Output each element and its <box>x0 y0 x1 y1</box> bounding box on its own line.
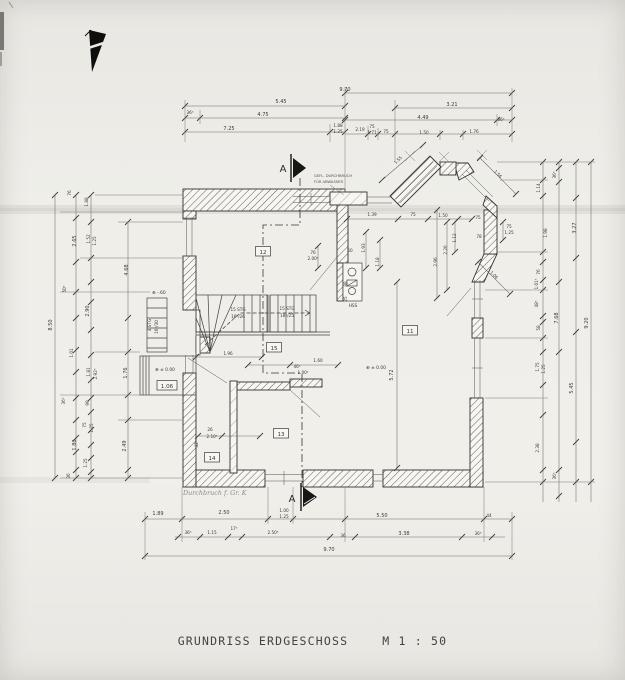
dim-bottom: 1.25 <box>279 514 289 519</box>
dim-left: 1.88 <box>84 197 89 207</box>
dim-top: 1.88 <box>333 123 343 128</box>
dim-right: 7.68 <box>554 312 560 323</box>
title-scale: M 1 : 50 <box>382 634 447 648</box>
dim-plan: 1.12 <box>452 233 457 243</box>
dim-bottom: 1.00 <box>279 508 289 513</box>
scanned-floorplan-page: 9.705.453.2136⁵4.754.4936⁵7.251.881.252.… <box>0 0 625 680</box>
wall-bay-cant-upper-start <box>454 163 474 180</box>
handwritten-note: Durchbruch f. Gr. K <box>182 489 248 497</box>
dim-top: 3.21 <box>446 102 457 108</box>
floorplan-drawing: 9.705.453.2136⁵4.754.4936⁵7.251.881.252.… <box>0 0 625 680</box>
dim-plan: 88 <box>343 281 348 287</box>
dim-bottom: 2.50⁵ <box>267 530 278 535</box>
dim-left: 1.81 <box>86 367 91 377</box>
dim-plan: 75 <box>506 224 512 229</box>
chimney-label: HSS <box>349 303 358 308</box>
dim-left: 1.25 <box>89 423 94 433</box>
stair-label: 18⁵/25 <box>280 313 294 318</box>
title-text: GRUNDRISS ERDGESCHOSS <box>178 634 349 648</box>
dim-plan: 42⁵ <box>194 440 199 447</box>
dim-right: 76 <box>536 269 541 275</box>
dim-right: 36⁵ <box>552 472 557 479</box>
section-triangle-top <box>293 158 306 178</box>
dim-top: 9.70 <box>339 87 350 93</box>
dim-right: 1.14 <box>536 183 541 193</box>
dim-plan: 1.56 <box>493 169 503 179</box>
cross-marks <box>405 150 487 162</box>
section-marker-a-top: A <box>280 164 287 175</box>
dim-top: 75 <box>383 129 389 134</box>
dim-left: 99 <box>85 400 90 406</box>
wall-room13-top <box>237 382 290 390</box>
dim-left: 2.49 <box>122 440 128 451</box>
dim-plan: 1.93 <box>361 243 366 253</box>
dim-right: 1.25 <box>541 364 546 374</box>
dim-plan: 50 <box>347 248 353 253</box>
dim-bottom: 44 <box>486 513 492 518</box>
dim-tick <box>379 177 385 183</box>
dim-left: 2.90 <box>85 305 91 316</box>
dim-left: 1.80 <box>72 439 78 450</box>
dim-bottom: 36⁵ <box>474 531 481 536</box>
dim-left: 8.50 <box>48 319 54 330</box>
dim-top: 2.19 <box>355 127 365 132</box>
dim-right: 5.45 <box>569 382 575 393</box>
dim-plan: 26 <box>207 427 213 432</box>
dim-top: 1.50 <box>419 130 429 135</box>
dim-left: 76 <box>67 190 72 196</box>
dim-right: 1.75 <box>535 362 540 372</box>
section-marker-a-bottom: A <box>289 494 296 505</box>
dim-top: 1.71 <box>367 130 377 135</box>
dim-bottom: 5.50 <box>376 513 387 519</box>
dim-plan: 2.10⁵ <box>206 434 217 439</box>
wall-left-lower <box>183 373 196 487</box>
exterior-stair-label: 16⁵/30 <box>154 320 159 334</box>
dim-bottom: 9.70 <box>323 547 334 553</box>
dim-left: 2.65 <box>72 235 78 246</box>
dim-plan: 1.96 <box>223 351 233 356</box>
dim-top: 7.25 <box>223 126 234 132</box>
wall-bottom <box>383 470 483 487</box>
dim-plan: 1.39 <box>367 212 377 217</box>
dimension-lines <box>52 88 595 560</box>
dim-plan: 2.26 <box>443 245 448 255</box>
dim-bottom: 36 <box>340 533 346 538</box>
dim-plan: 1.60 <box>313 358 323 363</box>
stair-label: 18⁵/26 <box>231 314 245 319</box>
duct-note-line2: FÜR ABWASSER <box>314 179 343 184</box>
wall-bottom <box>303 470 373 487</box>
dim-bottom: 36⁵ <box>184 530 191 535</box>
stair-label: 15 STG <box>279 306 294 311</box>
stair-label: 15 STG <box>230 307 245 312</box>
wall-room13-top <box>290 379 322 387</box>
dim-left: 50⁵ <box>62 285 67 292</box>
wall-left <box>183 256 196 310</box>
room-number-15: 15 <box>270 346 278 352</box>
dim-plan: 1.50 <box>438 213 448 218</box>
dim-plan: 2.96 <box>433 257 438 267</box>
dim-right: 48⁵ <box>534 300 539 307</box>
dim-bottom: 2.50 <box>218 510 229 516</box>
dim-right: 3.27 <box>572 222 578 233</box>
dim-top: 1.25 <box>333 129 343 134</box>
level-marker: ⊕ ± 0.00 <box>366 365 386 371</box>
dim-plan: 46⁵ <box>293 364 300 369</box>
dim-right: 58 <box>536 325 541 331</box>
dim-left: 75 <box>82 422 87 428</box>
dim-right: 36⁵ <box>552 171 557 178</box>
dim-top: 5.45 <box>275 99 286 105</box>
level-marker: ⊕ -.60 <box>152 290 166 296</box>
room-number-11: 11 <box>406 329 414 335</box>
wall-right-pier <box>472 318 483 338</box>
dim-left: 1.25 <box>83 458 88 468</box>
dim-left: 2.92⁵ <box>93 368 98 379</box>
duct-lintel <box>330 192 367 205</box>
north-arrow-icon <box>85 30 107 72</box>
dim-bottom: 1.15 <box>207 530 217 535</box>
dim-plan: 76 <box>310 250 316 255</box>
dim-plan: 25 <box>343 296 348 302</box>
dim-left: 1.52 <box>86 234 91 244</box>
dim-plan: 1.25 <box>504 230 514 235</box>
wall-top <box>183 189 345 211</box>
room-number-13: 13 <box>277 432 285 438</box>
room-number-14: 14 <box>208 456 216 462</box>
corner-mark <box>9 2 13 8</box>
dim-top: 4.75 <box>257 112 268 118</box>
dim-right: 1.98 <box>543 228 548 238</box>
dim-right: 1.01⁵ <box>534 278 539 289</box>
dim-plan: 1.18 <box>375 257 380 267</box>
stair-outer-wall <box>196 310 200 355</box>
dim-top: 36⁵ <box>186 110 193 115</box>
dim-left: 4.68 <box>124 264 130 275</box>
dim-plan: 78 <box>476 234 482 239</box>
room-number-1.06: 1.06 <box>161 384 174 390</box>
dim-plan: 75 <box>410 212 416 217</box>
exterior-stair-label: 4 STG <box>147 319 152 331</box>
dim-right: 2.38 <box>535 443 540 453</box>
dim-tick <box>420 142 426 148</box>
edge-smudge <box>0 12 4 50</box>
edge-smudge <box>0 52 2 66</box>
dim-right: 9.20 <box>584 317 590 328</box>
dim-plan: 1.06 <box>489 270 499 280</box>
wall-interior-light <box>230 381 237 473</box>
dim-top: 36⁵ <box>497 117 504 122</box>
dim-left: 1.01 <box>69 348 74 358</box>
dim-plan: 5.72 <box>389 369 395 380</box>
wall-interior-vertical <box>337 200 348 263</box>
dim-left: 1.76 <box>123 367 129 378</box>
dim-top: 75 <box>369 124 375 129</box>
dim-bottom: 3.38 <box>398 531 409 537</box>
drawing-title: GRUNDRISS ERDGESCHOSSM 1 : 50 <box>0 634 625 648</box>
dim-bottom: 1.89 <box>152 511 163 517</box>
wall-top-right-block <box>440 162 456 175</box>
room-number-12: 12 <box>259 250 266 256</box>
wall-bay-cant-lower <box>472 254 497 282</box>
dim-top: 4.49 <box>417 115 428 121</box>
wall-right-lower <box>470 398 483 487</box>
dim-left: 36 <box>66 473 71 479</box>
dim-top: 1.76 <box>469 129 479 134</box>
dim-left: 36⁵ <box>61 397 66 404</box>
dim-bottom: 17⁵ <box>230 526 237 531</box>
dim-plan: 1.00⁵ <box>297 370 308 375</box>
level-marker: ⊕ ± 0.00 <box>155 367 175 373</box>
dim-plan: 75 <box>475 215 481 220</box>
duct-note-line1: GEFL. DURCHBRUCH <box>314 174 352 178</box>
dim-left: 1.25 <box>92 236 97 246</box>
dim-plan: 2.00⁵ <box>307 256 318 261</box>
